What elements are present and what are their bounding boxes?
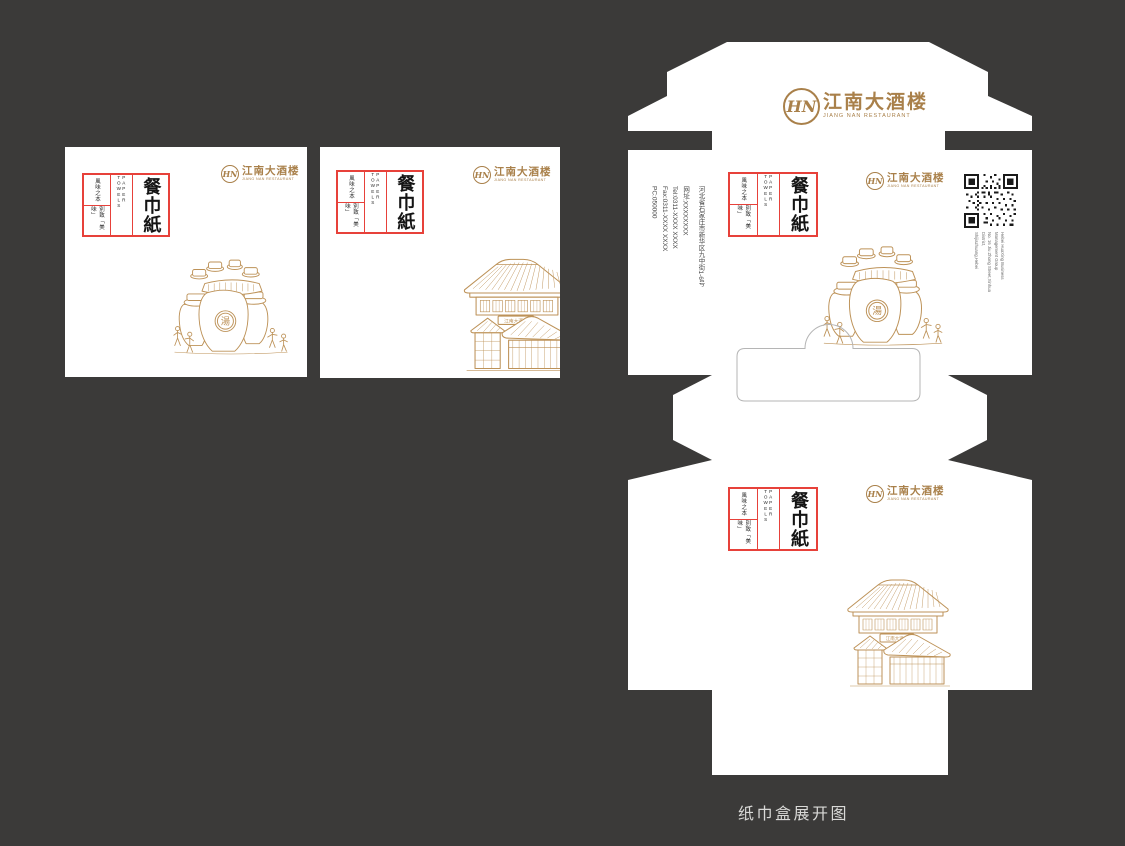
contact-postcode: PC:050000 [648,186,658,318]
brand-logo: HN 江南大酒楼 JIANG NAN RESTAURANT [866,172,945,190]
label-tagline-column: 風味之本 別致「美味」 [730,489,758,549]
tissue-label: 風味之本 別致「美味」 PAPER TOWELS 餐巾紙 [82,173,170,237]
restaurant-building-illustration [842,572,954,694]
diagram-caption: 纸巾盒展开图 [738,800,868,824]
hn-monogram-icon: HN [473,166,491,184]
contact-fax: Fax:0311-XXXX XXXX [658,186,668,318]
contact-website: 网址:XXXXXXXX [679,186,689,318]
label-tagline-column: 風味之本 別致「美味」 [338,172,365,232]
tissue-label: 風味之本 別致「美味」 PAPER TOWELS 餐巾紙 [728,172,818,237]
hn-monogram-icon: HN [866,172,884,190]
restaurant-building-illustration [456,251,560,378]
tissue-opening-cutline [730,318,930,410]
qr-caption-rotated: Hebei HuaXing Business Management Group … [961,232,1005,292]
brand-logo-text: 江南大酒楼 JIANG NAN RESTAURANT [887,486,945,501]
label-subtitle-en: PAPER TOWELS [111,175,133,235]
qr-code [964,174,1018,228]
label-tagline-bottom: 別致「美味」 [730,519,757,550]
label-tagline-column: 風味之本 別致「美味」 [84,175,111,235]
brand-logo: HN 江南大酒楼 JIANG NAN RESTAURANT [783,88,928,125]
brand-name-cn: 江南大酒楼 [887,486,945,497]
label-subtitle-en: PAPER TOWELS [365,172,387,232]
brand-name-en: JIANG NAN RESTAURANT [242,178,300,182]
brand-name-cn: 江南大酒楼 [887,173,945,184]
hn-monogram-icon: HN [221,165,239,183]
brand-logo: HN 江南大酒楼 JIANG NAN RESTAURANT [473,166,552,184]
label-title: 餐巾紙 [780,489,816,549]
label-subtitle-en: PAPER TOWELS [758,174,780,235]
label-tagline-bottom: 別致「美味」 [730,204,757,235]
label-title: 餐巾紙 [780,174,816,235]
label-subtitle-en: PAPER TOWELS [758,489,780,549]
label-title: 餐巾紙 [133,175,168,235]
brand-name-cn: 江南大酒楼 [494,167,552,178]
brand-logo-text: 江南大酒楼 JIANG NAN RESTAURANT [887,173,945,188]
box-face-preview-jars: 風味之本 別致「美味」 PAPER TOWELS 餐巾紙 HN 江南大酒楼 JI… [65,147,307,377]
label-title: 餐巾紙 [387,172,422,232]
brand-name-cn: 江南大酒楼 [823,93,928,112]
brand-name-en: JIANG NAN RESTAURANT [887,498,945,502]
qr-caption-line: Shijiazhuang,Hebei [973,232,979,292]
label-tagline-top: 風味之本 [730,174,757,204]
brand-logo-text: 江南大酒楼 JIANG NAN RESTAURANT [494,167,552,182]
box-face-preview-building: 風味之本 別致「美味」 PAPER TOWELS 餐巾紙 HN 江南大酒楼 JI… [320,147,560,378]
hn-monogram-icon: HN [783,88,820,125]
tissue-label: 風味之本 別致「美味」 PAPER TOWELS 餐巾紙 [728,487,818,551]
dieline-bottom-panel [628,460,1032,775]
contact-info-vertical: 河北省石家庄市新华区九中街1-6号 网址:XXXXXXXX Tel:0311-X… [648,186,705,318]
label-tagline-bottom: 別致「美味」 [338,202,364,233]
qr-caption-line: No. 16 Jiu Zhong Street,Xinhua District, [979,232,992,292]
wine-jars-illustration [171,255,293,361]
contact-tel: Tel:0311-XXXX XXXX [669,186,679,318]
brand-name-en: JIANG NAN RESTAURANT [823,114,928,120]
brand-logo-text: 江南大酒楼 JIANG NAN RESTAURANT [242,166,300,181]
label-tagline-top: 風味之本 [338,172,364,202]
brand-name-en: JIANG NAN RESTAURANT [494,179,552,183]
label-tagline-top: 風味之本 [84,175,110,205]
label-tagline-top: 風味之本 [730,489,757,519]
brand-logo: HN 江南大酒楼 JIANG NAN RESTAURANT [866,485,945,503]
qr-caption-line: Management Group [992,232,998,292]
qr-caption-line: Hebei HuaXing Business [999,232,1005,292]
label-tagline-bottom: 別致「美味」 [84,205,110,236]
brand-logo-text: 江南大酒楼 JIANG NAN RESTAURANT [823,93,928,120]
hn-monogram-icon: HN [866,485,884,503]
brand-name-en: JIANG NAN RESTAURANT [887,185,945,189]
label-tagline-column: 風味之本 別致「美味」 [730,174,758,235]
tissue-label: 風味之本 別致「美味」 PAPER TOWELS 餐巾紙 [336,170,424,234]
brand-name-cn: 江南大酒楼 [242,166,300,177]
contact-address: 河北省石家庄市新华区九中街1-6号 [695,186,705,318]
brand-logo: HN 江南大酒楼 JIANG NAN RESTAURANT [221,165,300,183]
